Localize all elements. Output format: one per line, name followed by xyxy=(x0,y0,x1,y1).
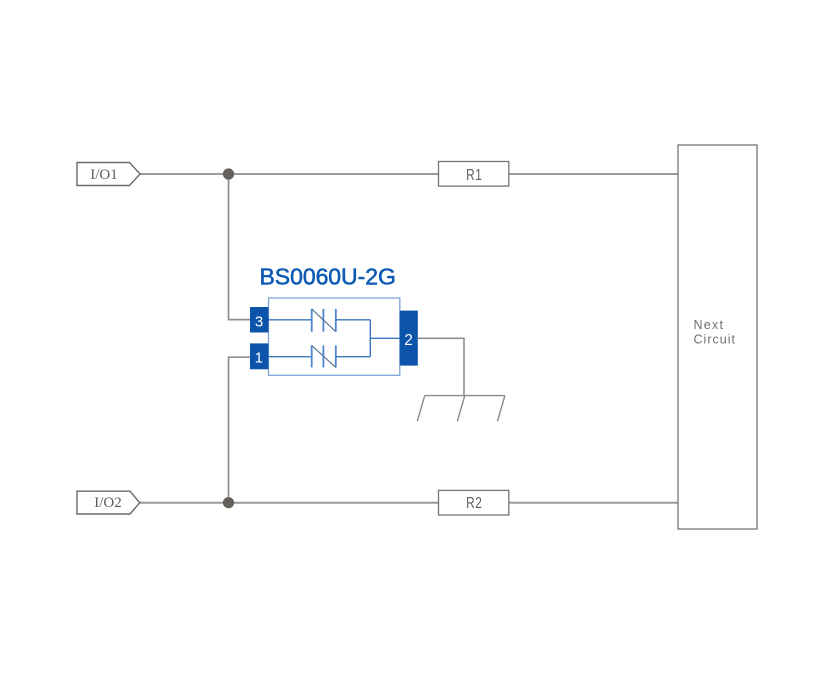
svg-text:R2: R2 xyxy=(466,495,482,512)
svg-text:2: 2 xyxy=(404,332,413,349)
svg-text:3: 3 xyxy=(255,313,263,330)
svg-text:I/O2: I/O2 xyxy=(94,495,122,511)
svg-text:Circuit: Circuit xyxy=(694,333,736,347)
svg-text:R1: R1 xyxy=(466,166,482,183)
svg-text:BS0060U-2G: BS0060U-2G xyxy=(260,264,396,290)
svg-text:Next: Next xyxy=(694,318,724,332)
svg-text:1: 1 xyxy=(255,349,263,366)
svg-text:I/O1: I/O1 xyxy=(90,167,118,183)
